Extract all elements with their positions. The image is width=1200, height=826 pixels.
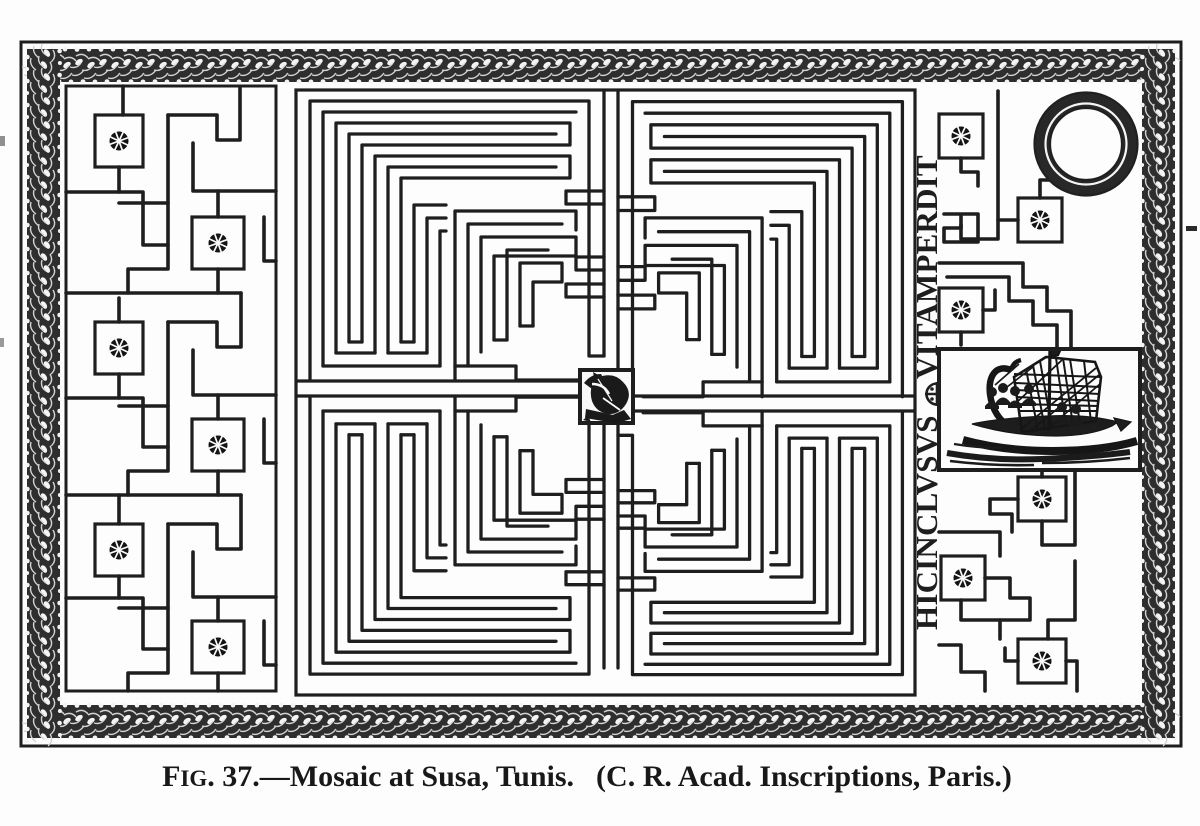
svg-text:VITAMPERDIT: VITAMPERDIT xyxy=(909,155,944,379)
